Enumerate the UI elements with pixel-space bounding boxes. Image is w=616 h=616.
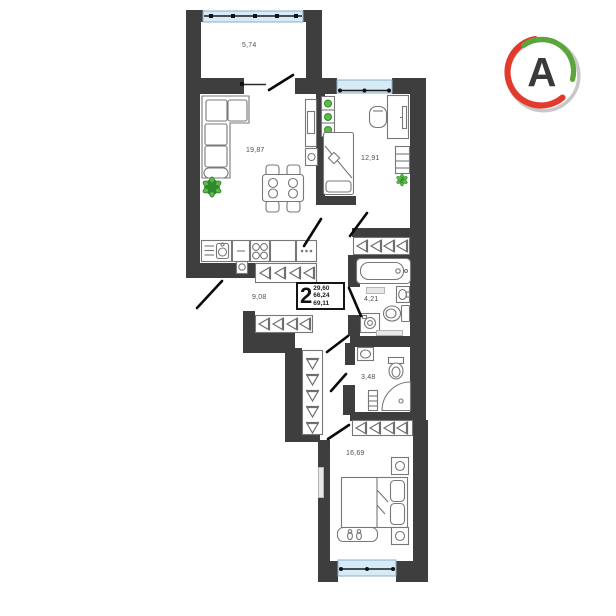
room-label-bedroom: 16,69	[346, 450, 365, 457]
wall-segment	[303, 10, 322, 22]
wardrobe	[353, 421, 413, 436]
water-heater	[237, 262, 248, 274]
nightstand	[392, 458, 409, 475]
window-office	[337, 80, 392, 93]
wall-segment	[186, 10, 203, 22]
towel-radiator	[369, 391, 378, 411]
kitchen-counter	[271, 241, 296, 262]
room-label-balcony: 5,74	[242, 42, 256, 49]
room-label-wc: 3,48	[361, 374, 375, 381]
tv-unit	[306, 100, 318, 166]
single-bed	[324, 133, 354, 195]
wardrobe	[256, 264, 317, 283]
radiator	[319, 468, 324, 498]
wall-segment	[348, 315, 360, 336]
furniture	[202, 96, 413, 545]
door-swing	[269, 75, 293, 90]
wall-segment	[410, 78, 426, 420]
unit-rooms-count: 2	[298, 285, 313, 307]
room-label-bathroom: 4,21	[364, 296, 378, 303]
wall-segment	[186, 94, 200, 278]
wardrobe	[354, 238, 410, 255]
room-label-office: 12,91	[361, 155, 380, 162]
rug	[377, 331, 403, 336]
window-bedroom	[338, 560, 396, 576]
room-label-hallway: 9,08	[252, 294, 266, 301]
bench-slippers	[338, 528, 378, 542]
door-swing	[328, 425, 349, 439]
corner-sofa	[202, 96, 249, 178]
logo-letter: A	[527, 49, 556, 95]
door-swing	[327, 336, 348, 352]
room-label-living: 19,87	[246, 147, 265, 154]
door-swing	[349, 288, 361, 316]
door-swing	[197, 281, 222, 308]
developer-logo: A	[496, 28, 586, 116]
bathtub	[357, 259, 411, 284]
unit-total-area: 69,11	[313, 300, 329, 307]
wall-segment	[295, 78, 337, 94]
stove	[251, 241, 270, 262]
double-bed	[342, 478, 408, 528]
wall-segment	[343, 385, 355, 415]
plant	[396, 174, 408, 186]
bookshelf	[396, 147, 410, 174]
kitchen-cabinet	[233, 241, 250, 262]
wall-segment	[413, 420, 428, 582]
wc-toilet	[389, 358, 404, 380]
wall-segment	[316, 196, 356, 205]
wall-segment	[186, 78, 244, 94]
wall-segment	[352, 228, 410, 237]
wall-segment	[350, 412, 413, 421]
shelf-unit	[322, 97, 335, 137]
wall-segment	[318, 440, 330, 565]
unit-area: 66,24	[313, 292, 329, 299]
kitchen-sink	[202, 241, 232, 262]
unit-info-box: 2 29,60 66,24 69,11	[296, 282, 345, 310]
logo-rings: A	[496, 28, 586, 116]
plant	[202, 177, 223, 197]
desk	[388, 96, 409, 139]
toilet	[384, 306, 410, 322]
washing-machine	[361, 314, 380, 333]
wall-segment	[345, 343, 355, 365]
nightstand	[392, 528, 409, 545]
wall-segment	[350, 336, 412, 347]
bathroom-sink	[397, 287, 410, 303]
wall-segment	[306, 22, 322, 78]
window-balcony	[203, 11, 303, 22]
wardrobe-vertical	[303, 351, 323, 435]
wall-segment	[318, 561, 338, 582]
wc-sink	[358, 348, 374, 361]
unit-living-area: 29,60	[313, 285, 329, 292]
shower	[382, 382, 411, 411]
floor-plan-page: 5,74 19,87 12,91 9,08 4,21 3,48 16,69 2 …	[0, 0, 616, 616]
bath-mat	[367, 288, 385, 294]
wall-segment	[285, 348, 302, 442]
dining-set	[263, 165, 304, 212]
wardrobe	[256, 316, 313, 333]
desk-chair	[370, 107, 387, 128]
